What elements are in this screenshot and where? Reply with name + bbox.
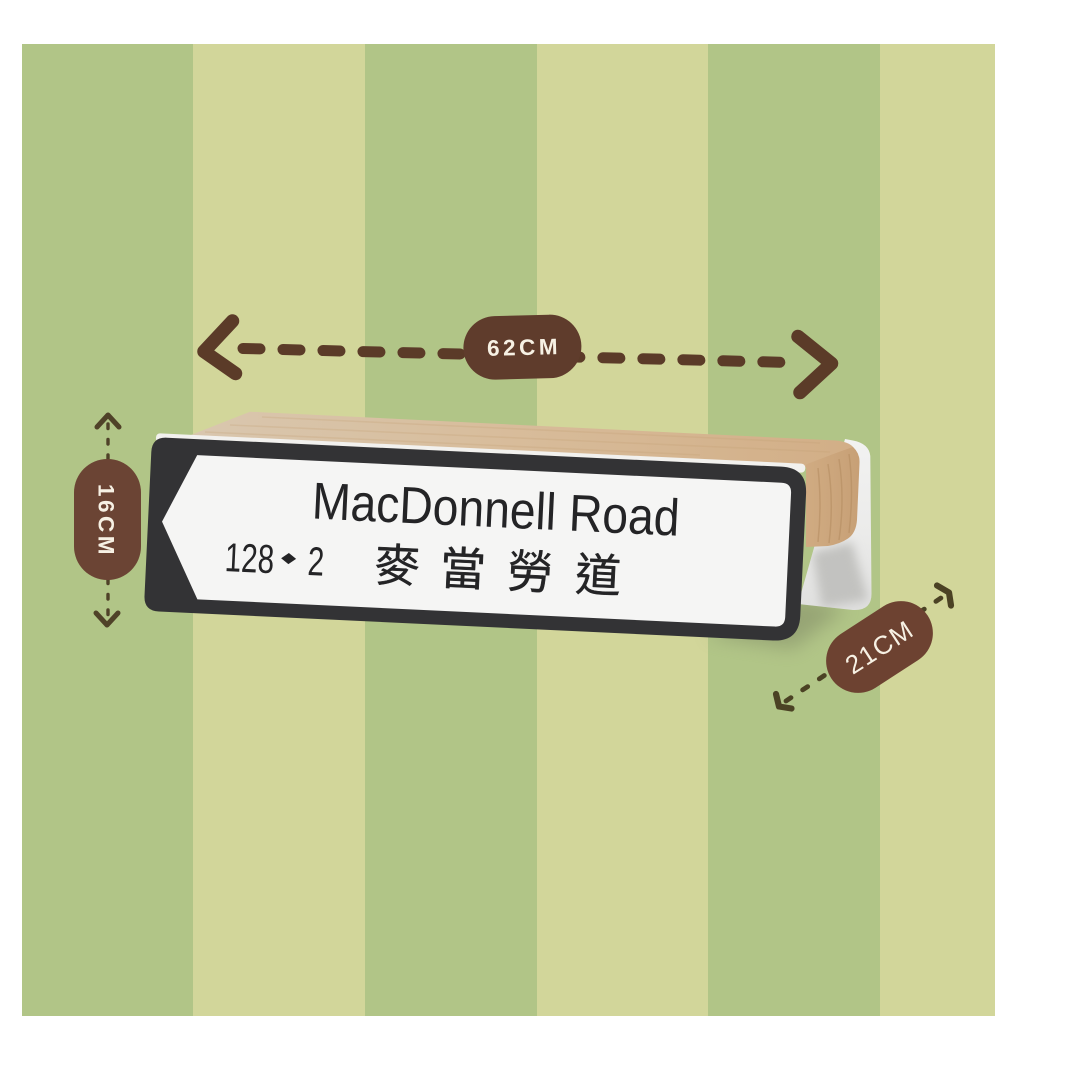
svg-text:2: 2 <box>307 538 326 584</box>
svg-text:62CM: 62CM <box>487 334 562 361</box>
svg-text:128: 128 <box>224 534 275 582</box>
svg-text:16CM: 16CM <box>94 484 119 558</box>
